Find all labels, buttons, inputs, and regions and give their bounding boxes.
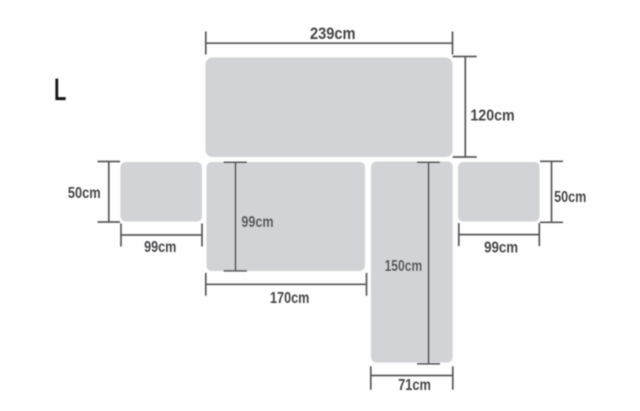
svg-text:99cm: 99cm [241,214,273,231]
svg-text:150cm: 150cm [385,258,423,275]
svg-text:239cm: 239cm [310,25,356,43]
svg-text:50cm: 50cm [68,185,101,202]
svg-text:71cm: 71cm [398,377,431,394]
svg-text:99cm: 99cm [144,239,176,256]
svg-text:50cm: 50cm [554,189,586,206]
svg-text:170cm: 170cm [270,290,309,307]
svg-text:99cm: 99cm [484,239,518,256]
svg-text:120cm: 120cm [470,107,514,124]
